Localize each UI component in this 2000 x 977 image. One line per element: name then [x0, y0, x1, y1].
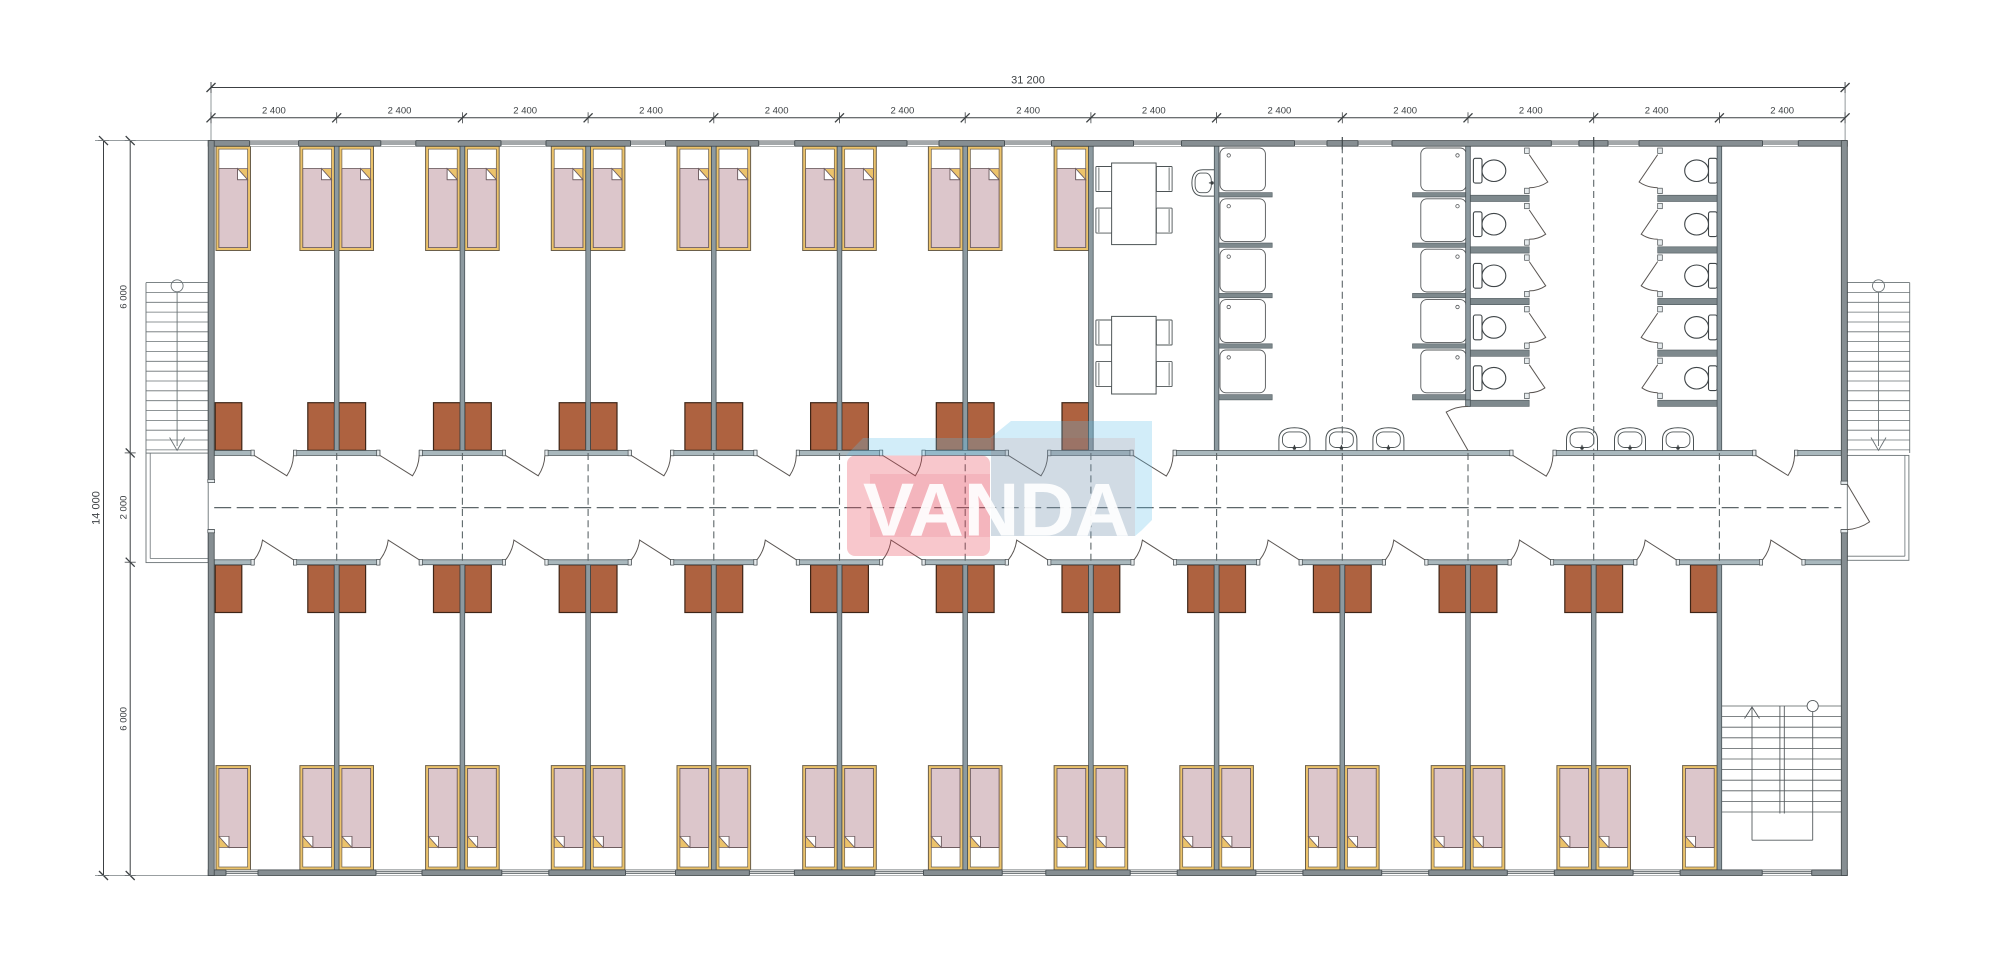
svg-text:2 400: 2 400 [639, 106, 663, 117]
svg-text:2 400: 2 400 [262, 106, 286, 117]
svg-text:2 400: 2 400 [1268, 106, 1292, 117]
svg-text:VANDA: VANDA [863, 468, 1130, 552]
svg-text:2 400: 2 400 [1016, 106, 1040, 117]
svg-text:2 000: 2 000 [119, 496, 130, 520]
svg-text:31 200: 31 200 [1011, 75, 1045, 87]
svg-text:6 000: 6 000 [119, 285, 130, 309]
svg-text:2 400: 2 400 [891, 106, 915, 117]
svg-text:2 400: 2 400 [1645, 106, 1669, 117]
svg-text:2 400: 2 400 [1519, 106, 1543, 117]
svg-text:2 400: 2 400 [513, 106, 537, 117]
svg-text:2 400: 2 400 [1142, 106, 1166, 117]
svg-text:2 400: 2 400 [765, 106, 789, 117]
svg-text:2 400: 2 400 [1770, 106, 1794, 117]
svg-text:14 000: 14 000 [91, 491, 103, 525]
svg-text:2 400: 2 400 [388, 106, 412, 117]
svg-text:2 400: 2 400 [1393, 106, 1417, 117]
svg-text:6 000: 6 000 [119, 707, 130, 731]
